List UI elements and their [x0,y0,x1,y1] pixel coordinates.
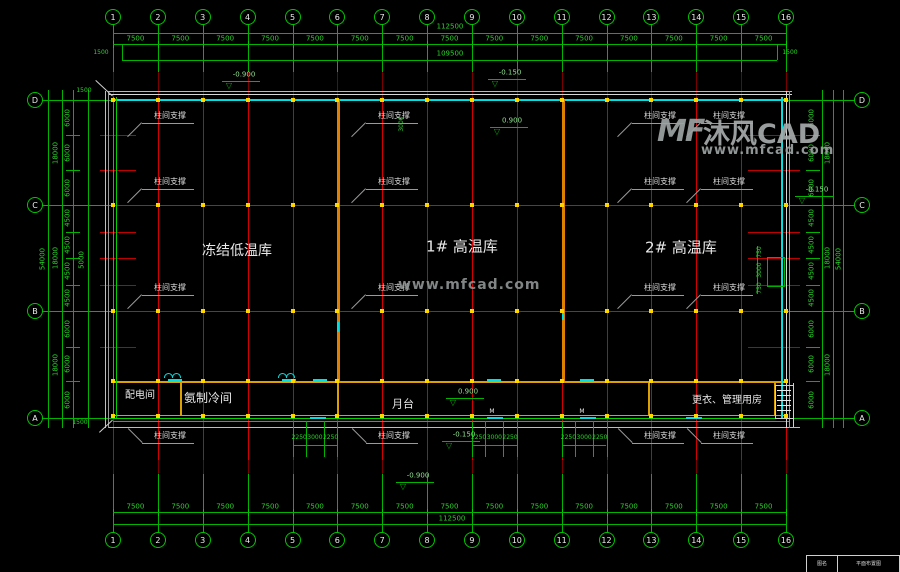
door-dim-line [293,445,338,446]
column-marker [425,379,429,383]
column-grid-line [651,97,652,460]
dim-tick [836,100,850,101]
grid-line-v-stub [382,460,383,474]
door-dim-line [472,445,517,446]
dim-tick [836,418,850,419]
bracing-label: 柱间支撑 [378,284,410,292]
bracing-label: 柱间支撑 [713,178,745,186]
side-dim-text: 6000 [65,320,72,338]
bracing-label: 柱间支撑 [713,432,745,440]
bay-dim-text: 7500 [530,36,548,43]
side-dim-text: 6000 [65,179,72,197]
grid-line-v-stub [337,460,338,474]
grid-bubble-top: 3 [195,9,211,25]
leader-line [142,443,194,444]
elevation-text: -0.150 [499,70,522,77]
column-marker [470,203,474,207]
bay-dim-text: 7500 [665,36,683,43]
elevation-triangle-icon: ▽ [799,197,805,205]
door-arc-icon [286,373,295,378]
bay-dim-text: 7500 [306,36,324,43]
west-wall [116,97,117,418]
dim-tick [806,311,820,312]
side-dim-text: 18000 [825,247,832,269]
dim-tick [66,347,80,348]
elevation-text: 0.900 [458,389,478,396]
column-marker [156,98,160,102]
column-marker [694,309,698,313]
column-grid-line [248,97,249,460]
dim-tick [55,418,69,419]
leader-line [352,428,367,443]
dim-tick [55,100,69,101]
grid-bubble-right: B [854,303,870,319]
dim-total-text: 109500 [437,51,464,58]
grid-line-v [651,24,652,72]
outer-wall-line [105,91,106,428]
column-grid-line [382,97,383,460]
dim-tick [806,135,820,136]
dim-tick [66,285,80,286]
column-marker [605,379,609,383]
leader-line [632,443,684,444]
grid-bubble-right: D [854,92,870,108]
sub-row-stub [748,170,800,171]
door-dash [487,379,501,381]
side-dim-text: 4500 [65,289,72,307]
leader-line [617,294,632,309]
interior-wall [562,100,565,381]
bracing-label: 柱间支撑 [378,432,410,440]
column-marker [380,98,384,102]
side-dim-text: 6000 [809,355,816,373]
column-marker [694,414,698,418]
elevation-text: -0.900 [233,72,256,79]
column-marker [425,203,429,207]
bay-dim-text: 7500 [351,36,369,43]
side-dim-text: 6000 [809,109,816,127]
column-marker [560,414,564,418]
grid-bubble-top: 13 [643,9,659,25]
bay-dim-text: 7500 [710,36,728,43]
stair-tread [777,410,791,411]
grid-line-v [562,24,563,72]
side-dim-text: 4500 [65,236,72,254]
dim-connector [777,44,778,60]
grid-line-v [786,24,787,72]
bay-dim-text: 7500 [755,36,773,43]
column-marker [201,98,205,102]
dim-line-v [62,90,63,428]
grid-line-v [696,24,697,72]
grid-bubble-top: 16 [778,9,794,25]
bracing-label: 柱间支撑 [154,432,186,440]
grid-bubble-bottom: 14 [688,532,704,548]
watermark-center: www.mfcad.com [398,277,541,293]
door-dim-text: 3000 [487,435,502,441]
side-dim-text: 4500 [809,262,816,280]
column-marker [605,98,609,102]
column-marker [470,379,474,383]
column-grid-line [427,97,428,460]
side-dim-text: 5000 [79,251,86,269]
column-marker [560,379,564,383]
bay-dim-text: 7500 [216,504,234,511]
elevation-triangle-icon: ▽ [450,399,456,407]
column-marker [649,203,653,207]
column-marker [291,98,295,102]
grid-bubble-bottom: 10 [509,532,525,548]
door-tag: M [489,409,494,415]
side-dim-text: 4500 [809,209,816,227]
outer-wall-line [793,383,794,427]
bracing-label: 柱间支撑 [644,284,676,292]
grid-line-v-stub [472,460,473,474]
column-marker [425,414,429,418]
column-marker [515,203,519,207]
grid-bubble-top: 11 [554,9,570,25]
column-marker [380,379,384,383]
grid-line-v-stub [203,460,204,474]
column-marker [515,309,519,313]
elevation-triangle-icon: ▽ [446,442,452,450]
dim-tick [41,100,55,101]
dim-tick [66,232,80,233]
column-marker [649,98,653,102]
bay-dim-text: 7500 [620,504,638,511]
column-marker [649,309,653,313]
leader-line [142,189,194,190]
bracing-label: 柱间支撑 [713,284,745,292]
side-dim-text: 6000 [65,109,72,127]
column-marker [739,414,743,418]
room-label: 1# 高温库 [426,240,498,255]
elevation-triangle-icon: ▽ [226,82,232,90]
column-marker [291,203,295,207]
door-dim-text: 2250 [292,435,307,441]
column-marker [156,414,160,418]
annex-wall [113,381,786,383]
dim-line-h [122,60,777,61]
bay-dim-text: 7500 [530,504,548,511]
column-marker [111,203,115,207]
column-grid-line [517,97,518,460]
column-marker [201,309,205,313]
column-marker [605,309,609,313]
grid-bubble-bottom: 8 [419,532,435,548]
dim-tick [806,205,820,206]
column-marker [111,98,115,102]
grid-bubble-bottom: 13 [643,532,659,548]
annex-partition [337,383,339,416]
column-marker [739,98,743,102]
outer-wall-line [108,91,792,92]
bracing-label: 柱间支撑 [644,432,676,440]
leader-line [701,123,753,124]
room-label: 配电间 [125,391,155,401]
column-marker [111,379,115,383]
interior-wall [337,100,340,381]
grid-bubble-top: 7 [374,9,390,25]
column-marker [246,98,250,102]
dim-tick [806,418,820,419]
grid-bubble-top: 12 [599,9,615,25]
grid-line-v [248,24,249,72]
dim-tick [806,381,820,382]
column-marker [739,309,743,313]
grid-bubble-left: A [27,410,43,426]
dim-connector [122,44,123,60]
side-dim-text: 6000 [65,355,72,373]
column-marker [291,309,295,313]
grid-line-v [203,24,204,72]
leader-line [351,122,366,137]
leader-line [127,294,142,309]
grid-bubble-right: A [854,410,870,426]
column-marker [605,414,609,418]
side-dim-total: 54000 [836,248,843,270]
column-marker [291,379,295,383]
column-marker [470,98,474,102]
column-grid-line [607,97,608,460]
leader-line [617,188,632,203]
room-label: 更衣、管理用房 [692,396,762,406]
edge-dim-text: 1500 [93,50,108,56]
side-dim-text: 6000 [65,144,72,162]
leader-line [618,428,633,443]
side-dim-text: 4500 [65,262,72,280]
grid-bubble-left: C [27,197,43,213]
dim-tick [806,285,820,286]
leader-line [351,188,366,203]
leader-line [686,188,701,203]
bracing-label: 柱间支撑 [644,178,676,186]
column-marker [425,98,429,102]
leader-line [127,188,142,203]
column-marker [201,379,205,383]
bay-dim-text: 7500 [127,36,145,43]
elevation-text: -0.150 [806,187,829,194]
column-marker [246,309,250,313]
dim-tick [826,311,840,312]
column-marker [649,379,653,383]
stair-tread [777,405,791,406]
dim-total-text: 112500 [439,516,466,523]
column-marker [380,309,384,313]
dim-line-h [113,524,786,525]
bay-dim-text: 7500 [665,504,683,511]
grid-line-v-stub [562,460,563,474]
leader-line [632,189,684,190]
grid-bubble-bottom: 3 [195,532,211,548]
leader-line [366,189,418,190]
outer-wall-line [108,91,109,428]
column-marker [694,379,698,383]
grid-line-h [786,311,855,312]
column-marker [694,203,698,207]
column-marker [246,203,250,207]
column-marker [470,414,474,418]
outer-wall-line [789,91,790,428]
grid-bubble-bottom: 15 [733,532,749,548]
dim-tick [786,41,787,48]
title-block-name: 平面布置图 [838,556,899,572]
dim-line-v [88,90,89,428]
grid-bubble-left: B [27,303,43,319]
grid-bubble-left: D [27,92,43,108]
column-marker [739,379,743,383]
dim-line-h [113,512,786,513]
side-dim-text: 6000 [809,391,816,409]
bay-dim-text: 7500 [171,504,189,511]
grid-line-v [741,24,742,72]
pit-dim-text: 3000 [757,262,763,277]
bracing-row-line [113,311,786,312]
column-marker [425,309,429,313]
stair-tread [777,390,791,391]
grid-bubble-bottom: 12 [599,532,615,548]
door-dash [580,379,594,381]
grid-line-v [607,24,608,72]
bay-dim-text: 7500 [261,504,279,511]
grid-bubble-top: 6 [329,9,345,25]
bracing-label: 柱间支撑 [378,178,410,186]
annex-partition [648,383,650,416]
column-marker [246,414,250,418]
leader-line [128,428,143,443]
bay-dim-text: 7500 [127,504,145,511]
side-dim-total: 54000 [40,248,47,270]
grid-line-h [786,205,855,206]
bay-dim-text: 7500 [351,504,369,511]
grid-line-v [472,24,473,72]
grid-line-v-stub [113,460,114,474]
column-marker [335,379,339,383]
side-dim-text: 18000 [825,141,832,163]
column-marker [111,309,115,313]
grid-bubble-bottom: 11 [554,532,570,548]
bay-dim-text: 7500 [485,504,503,511]
grid-line-v-stub [696,460,697,474]
column-grid-line [293,97,294,460]
column-grid-line [203,97,204,460]
side-dim-text: 18000 [53,141,60,163]
column-marker [649,414,653,418]
column-marker [201,414,205,418]
door-dash [310,417,326,419]
grid-bubble-bottom: 6 [329,532,345,548]
column-marker [784,414,788,418]
grid-line-v-stub [293,460,294,474]
bracing-row-line [113,205,786,206]
door-dim-text: 2250 [323,435,338,441]
column-marker [784,203,788,207]
door-tag: M [579,409,584,415]
column-marker [111,414,115,418]
column-grid-line [472,97,473,460]
dim-tick [66,135,80,136]
column-marker [784,379,788,383]
leader-line [617,122,632,137]
elevation-triangle-icon: ▽ [492,80,498,88]
dim-tick [806,100,820,101]
side-dim-cap: 1500 [76,88,91,94]
grid-line-v [786,474,787,533]
dim-line-v [73,90,74,428]
dim-tick [786,509,787,516]
dim-total-text: 112500 [437,24,464,31]
grid-bubble-top: 2 [150,9,166,25]
leader-line [142,123,194,124]
annex-partition [180,383,182,416]
grid-bubble-bottom: 16 [778,532,794,548]
column-marker [515,379,519,383]
grid-line-v [427,24,428,72]
column-marker [470,309,474,313]
west-wall [113,97,114,418]
grid-line-v [293,24,294,72]
door-dash [168,379,182,381]
door-dim-text: 2250 [502,435,517,441]
cad-canvas: MF 沐风CAD www.mfcad.com www.mfcad.com 图名 … [0,0,900,572]
dim-tick [806,258,820,259]
dim-tick [806,347,820,348]
door-dim-text: 3000 [576,435,591,441]
leader-line [686,122,701,137]
column-marker [605,203,609,207]
bracing-label: 柱间支撑 [644,112,676,120]
side-dim-text: 18000 [53,353,60,375]
grid-line-v-stub [786,460,787,474]
grid-bubble-top: 14 [688,9,704,25]
column-marker [156,203,160,207]
elevation-triangle-icon: ▽ [400,483,406,491]
door-dim-text: 2250 [592,435,607,441]
elevation-triangle-icon: ▽ [494,128,500,136]
bay-dim-text: 7500 [171,36,189,43]
grid-line-v-stub [651,460,652,474]
bay-dim-text: 7500 [620,36,638,43]
grid-line-v [158,24,159,72]
door-arc-icon [172,373,181,378]
column-marker [156,309,160,313]
room-label: 冻结低温库 [202,244,272,258]
dim-text: 3000 [399,116,405,131]
room-label: 2# 高温库 [645,241,717,256]
leader-line [632,123,684,124]
side-dim-text: 6000 [809,320,816,338]
grid-bubble-right: C [854,197,870,213]
column-grid-line [158,97,159,460]
stair-tread [777,395,791,396]
side-dim-text: 18000 [53,247,60,269]
leader-line [366,123,418,124]
grid-bubble-bottom: 4 [240,532,256,548]
column-marker [515,98,519,102]
leader-line [701,443,753,444]
side-dim-text: 18000 [825,353,832,375]
grid-bubble-top: 8 [419,9,435,25]
leader-line [351,294,366,309]
door-mark [337,322,339,332]
sub-row-stub [748,135,800,136]
grid-bubble-top: 10 [509,9,525,25]
column-marker [156,379,160,383]
grid-line-v [382,24,383,72]
column-marker [380,414,384,418]
dim-tick [66,381,80,382]
stair-tread [777,400,791,401]
